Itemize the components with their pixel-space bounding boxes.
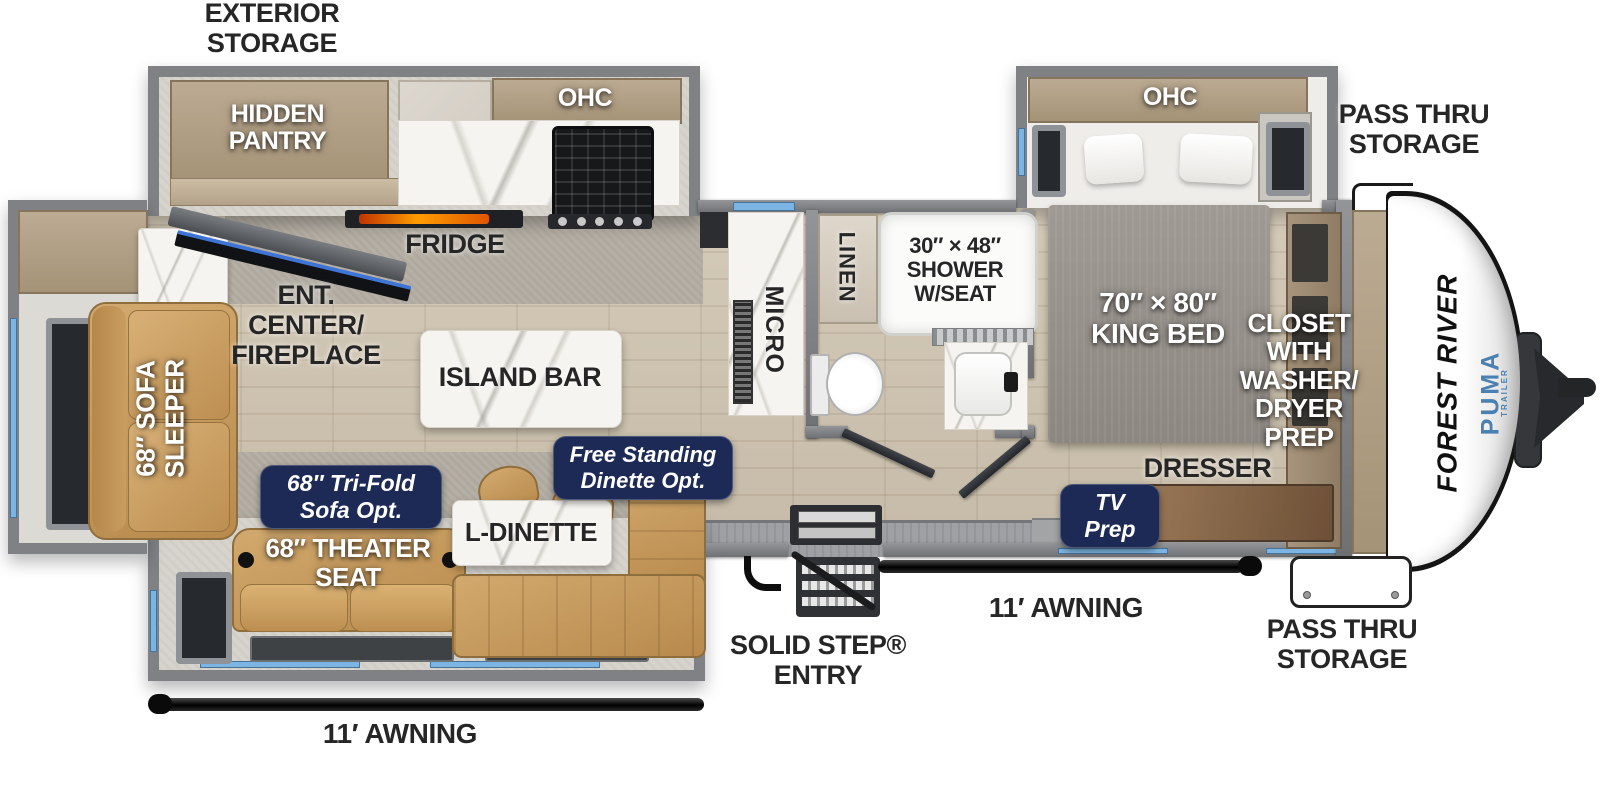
floorplan-canvas: 68″ SOFA SLEEPER HIDDEN PANTRY OHC FRIDG… [0, 0, 1600, 805]
theater-seat-label: 68″ THEATER SEAT [250, 532, 446, 594]
closet-label: CLOSET WITH WASHER/ DRYER PREP [1228, 300, 1370, 460]
floor-mat-1 [250, 636, 454, 662]
hidden-pantry-label: HIDDEN PANTRY [195, 92, 360, 164]
awning-right-label: 11′ AWNING [976, 590, 1156, 626]
pass-thru-door [1290, 556, 1412, 608]
dinette-bench-bottom [452, 574, 706, 658]
awning-left-label: 11′ AWNING [305, 716, 495, 752]
island-bar-label: ISLAND BAR [425, 332, 615, 424]
entry-step-interior [790, 505, 882, 545]
tri-fold-sofa-badge: 68″ Tri-Fold Sofa Opt. [260, 465, 442, 529]
stove-knob-strip [548, 214, 652, 229]
range-stove [552, 126, 654, 222]
pass-thru-top-label: PASS THRU STORAGE [1330, 98, 1498, 162]
bedroom-side-window [1032, 125, 1066, 197]
closet-slot-1 [1292, 224, 1328, 282]
pillow-1 [1083, 133, 1144, 185]
kitchen-window [733, 202, 795, 211]
rear-slide-window-accent [10, 318, 17, 518]
entry-grab-handle [744, 556, 781, 591]
bedroom-window-1 [1058, 548, 1168, 554]
awning-rod-left [156, 698, 704, 711]
bedroom-slide-window-l [1018, 128, 1025, 176]
brand-forest-river: FOREST RIVER [1425, 215, 1469, 551]
bath-faucet [1004, 372, 1018, 392]
bottom-wall-left [698, 543, 788, 557]
dresser [1130, 484, 1334, 542]
living-slide-window [176, 572, 232, 664]
toilet-bowl [826, 352, 884, 416]
bedroom-ohc-label: OHC [1125, 79, 1215, 117]
hitch-tongue [1558, 378, 1596, 397]
pillow-2 [1179, 133, 1253, 185]
tri-fold-sofa-label: 68″ Tri-Fold Sofa Opt. [287, 470, 415, 524]
awning-rod-right-cap [1238, 556, 1262, 576]
rear-cabinet [18, 210, 148, 294]
living-slide-window-accent [150, 590, 157, 652]
micro-label: MICRO [750, 250, 796, 410]
pantry-counter [170, 178, 404, 206]
ent-center-label: ENT. CENTER/ FIREPLACE [220, 272, 392, 380]
exterior-storage-label: EXTERIOR STORAGE [188, 0, 356, 58]
hitch-a-frame [1534, 348, 1584, 448]
brand-puma-sub: TRAILER [1498, 350, 1510, 434]
shower-label: 30″ × 48″ SHOWER W/SEAT [884, 216, 1026, 324]
tv-prep-badge: TV Prep [1060, 484, 1160, 548]
free-standing-dinette-label: Free Standing Dinette Opt. [570, 442, 717, 494]
sofa-sleeper-label: 68″ SOFA SLEEPER [80, 295, 240, 543]
bedroom-wardrobe-window [1266, 122, 1310, 196]
awning-rod-left-cap [148, 694, 172, 714]
pass-thru-bottom-label: PASS THRU STORAGE [1252, 612, 1432, 678]
linen-label: LINEN [818, 214, 874, 320]
l-dinette-label: L-DINETTE [455, 502, 607, 562]
fridge-label: FRIDGE [385, 226, 525, 264]
awning-rod-right [878, 560, 1244, 573]
free-standing-dinette-badge: Free Standing Dinette Opt. [553, 436, 733, 500]
solid-step-entry-label: SOLID STEP® ENTRY [726, 628, 910, 694]
tv-prep-label: TV Prep [1084, 489, 1135, 543]
kitchen-ohc-label: OHC [540, 80, 630, 118]
living-slide-accent-b2 [430, 661, 600, 668]
